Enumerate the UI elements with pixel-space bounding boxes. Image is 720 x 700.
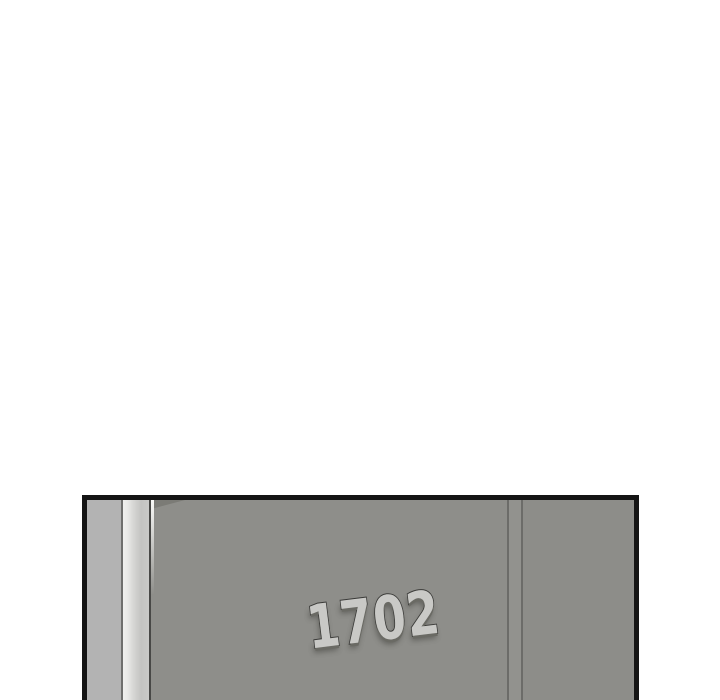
doorframe-strip bbox=[123, 500, 149, 700]
door-number-plate: 1702 bbox=[303, 578, 444, 664]
door-top-edge-shading bbox=[151, 500, 185, 509]
comic-panel: 1702 bbox=[82, 495, 639, 700]
right-wall bbox=[523, 500, 634, 700]
door-hinge-highlight bbox=[151, 500, 154, 595]
door-jamb-strip bbox=[509, 500, 521, 700]
comic-page: 1702 bbox=[0, 0, 720, 700]
panel-scene: 1702 bbox=[87, 500, 634, 700]
apartment-door: 1702 bbox=[151, 500, 507, 700]
left-wall bbox=[87, 500, 121, 700]
